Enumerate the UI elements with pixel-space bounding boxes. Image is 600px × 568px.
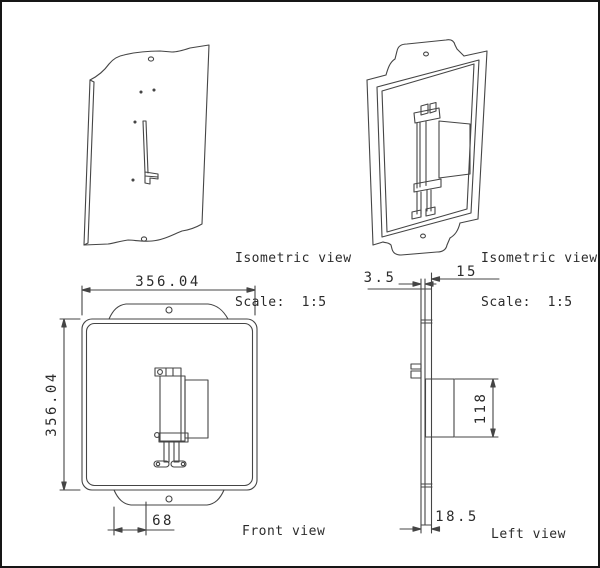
front-view-label: Front view Scale: 1:5 (242, 496, 334, 568)
iso-back-view-label: Isometric view Scale: 1:5 (235, 223, 352, 339)
technical-drawing-sheet: 356.04 356.04 68 3.5 15 118 18.5 Isometr… (0, 0, 600, 568)
flange-depth-dimension: 15 (452, 264, 482, 280)
front-offset-dimension: 68 (150, 513, 176, 529)
front-view-title: Front view (242, 525, 334, 540)
left-view-title: Left view (491, 528, 583, 543)
front-view-drawing (60, 286, 257, 535)
front-width-dimension: 356.04 (132, 274, 204, 290)
total-depth-dimension: 18.5 (434, 509, 480, 525)
plate-thickness-dimension: 3.5 (362, 270, 398, 286)
iso-front-view-title: Isometric view (481, 252, 598, 267)
bracket-height-dimension: 118 (473, 378, 487, 438)
iso-front-view-scale: Scale: 1:5 (481, 296, 598, 311)
iso-front-view-label: Isometric view Scale: 1:5 (481, 223, 598, 339)
left-view-label: Left view Scale: 1:5 (491, 499, 583, 568)
iso-front-view-drawing (367, 40, 487, 255)
iso-back-view-drawing (84, 45, 209, 245)
iso-back-view-scale: Scale: 1:5 (235, 296, 352, 311)
front-height-dimension: 356.04 (44, 364, 58, 444)
iso-back-view-title: Isometric view (235, 252, 352, 267)
